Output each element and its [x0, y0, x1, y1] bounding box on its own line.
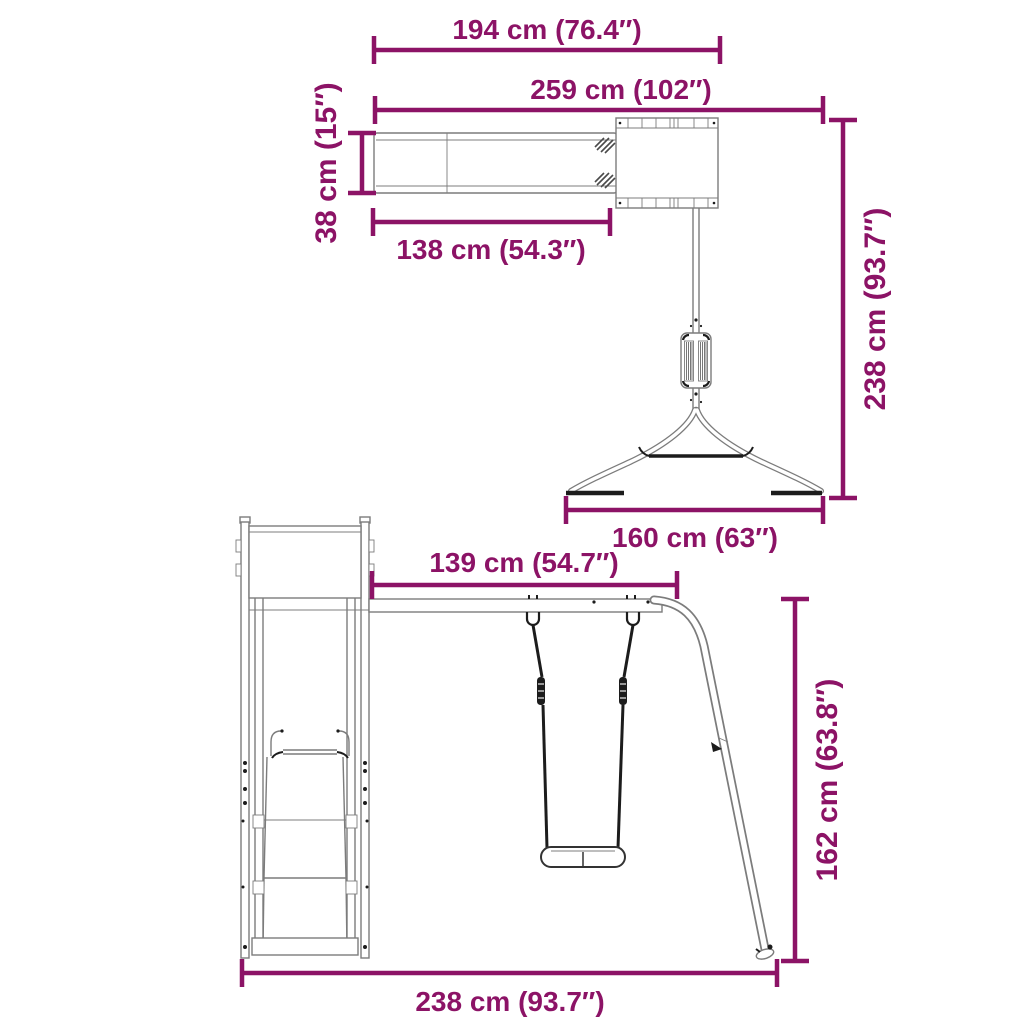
dimension-162-label: 162 cm (63.8″): [811, 679, 844, 882]
dimension-194-label: 194 cm (76.4″): [452, 14, 641, 45]
dimension-238-top-label: 238 cm (93.7″): [859, 208, 892, 411]
diagram-canvas: 194 cm (76.4″) 259 cm (102″) 38 cm (15″)…: [0, 0, 1024, 1024]
dimension-238-bottom: 238 cm (93.7″): [242, 959, 777, 1017]
dimension-238-bottom-label: 238 cm (93.7″): [415, 986, 604, 1017]
rope-adjuster-left: [537, 677, 545, 705]
dimension-139-label: 139 cm (54.7″): [429, 547, 618, 578]
frame-legs-plan: [566, 410, 822, 493]
swing-hanger-left: [527, 612, 539, 625]
rope-adjuster-right: [619, 677, 627, 705]
slide-front: [252, 729, 358, 955]
dimension-139: 139 cm (54.7″): [372, 547, 677, 599]
swing: [527, 612, 639, 867]
top-view: [374, 118, 822, 493]
frame-leg-front: [654, 600, 775, 961]
dimension-160-label: 160 cm (63″): [612, 522, 778, 553]
dimension-259: 259 cm (102″): [375, 74, 823, 124]
dimension-138-label: 138 cm (54.3″): [396, 234, 585, 265]
dimension-238-top: 238 cm (93.7″): [829, 120, 892, 498]
swing-hanger-right: [627, 612, 639, 625]
dimension-38: 38 cm (15″): [310, 82, 376, 243]
dimension-194: 194 cm (76.4″): [374, 14, 720, 64]
dimension-diagram: 194 cm (76.4″) 259 cm (102″) 38 cm (15″)…: [0, 0, 1024, 1024]
tower-bolts: [242, 761, 369, 949]
dimension-38-label: 38 cm (15″): [310, 82, 343, 243]
swing-seat: [541, 847, 625, 867]
dimension-160: 160 cm (63″): [566, 496, 823, 553]
platform-plan: [616, 118, 718, 208]
slide-plan: [374, 133, 617, 193]
dimension-138: 138 cm (54.3″): [373, 208, 610, 265]
swing-seat-plan: [681, 333, 711, 388]
climbing-tower: [236, 517, 374, 958]
dimension-259-label: 259 cm (102″): [530, 74, 712, 105]
swing-beam: [369, 595, 662, 612]
dimension-162: 162 cm (63.8″): [781, 599, 844, 961]
